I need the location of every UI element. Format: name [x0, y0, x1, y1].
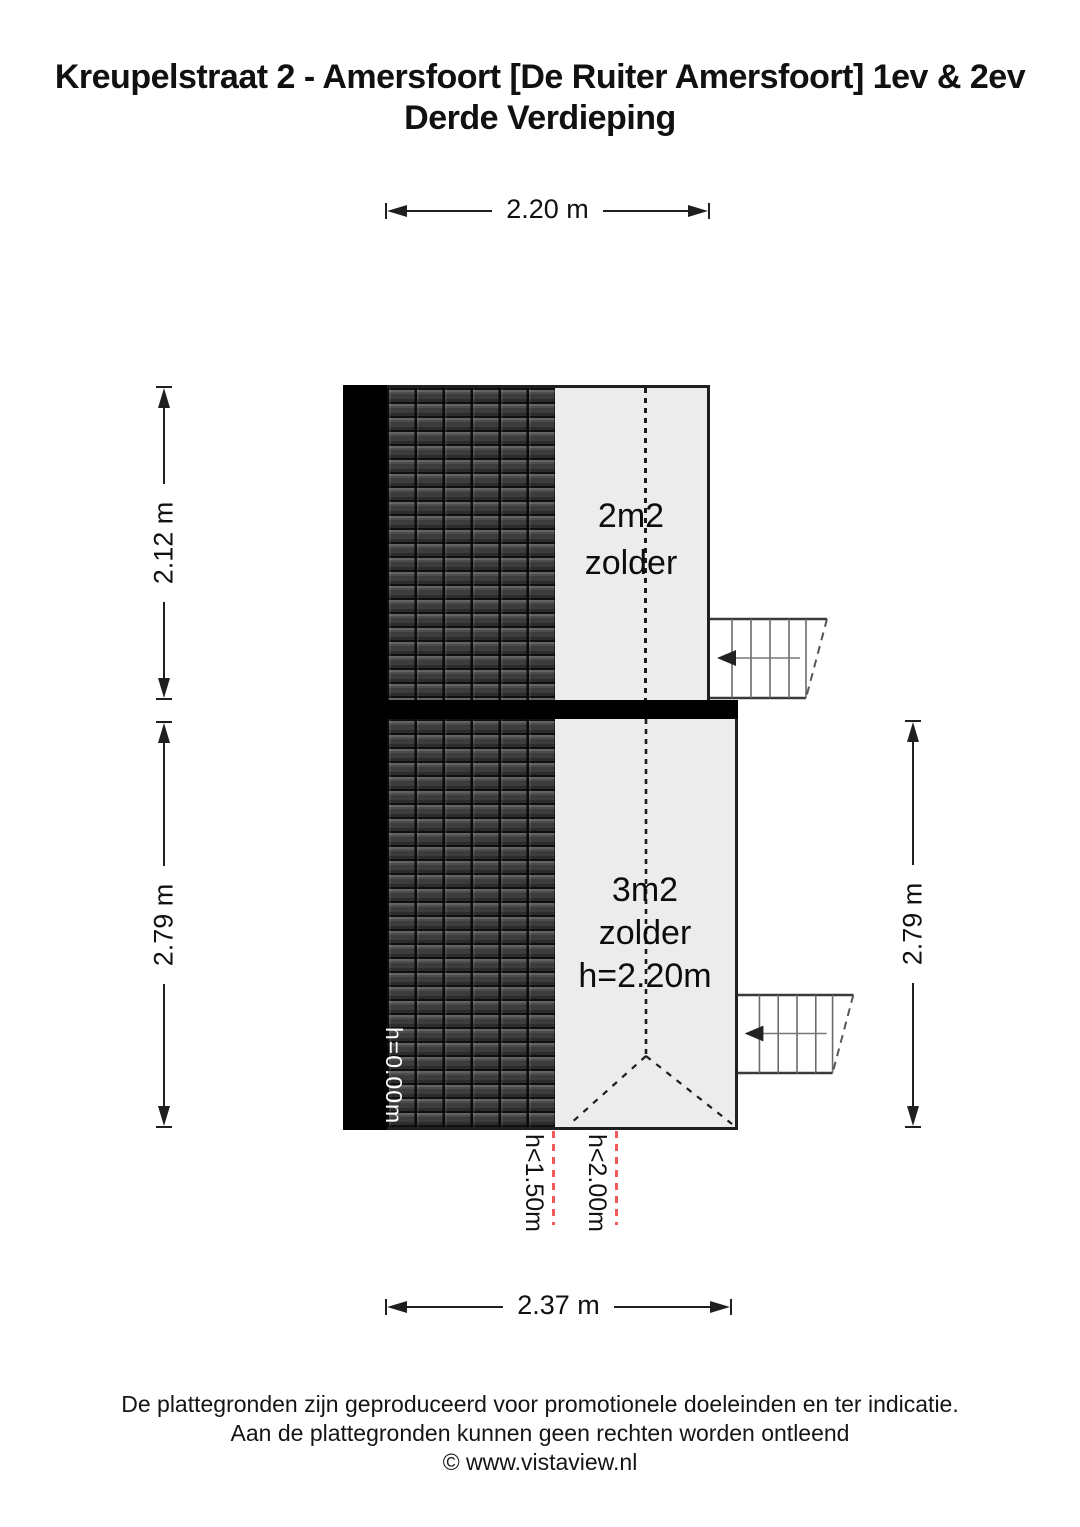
page-title: Kreupelstraat 2 - Amersfoort [De Ruiter …	[0, 57, 1080, 98]
dimension-line	[163, 984, 165, 1107]
staircase-lower-drawing	[737, 993, 857, 1075]
dimension-endbar	[708, 203, 710, 219]
arrow-left-icon	[387, 1301, 407, 1313]
dimension-label-wrap: 2.79 m	[151, 866, 177, 984]
room-upper-name: zolder	[555, 540, 707, 587]
dimension-left-upper: 2.12 m	[151, 386, 177, 700]
attic-room-upper: 2m2 zolder	[343, 385, 710, 700]
dimension-line	[163, 743, 165, 866]
eaves-height-label: h=0.00m	[380, 1027, 407, 1124]
dimension-line	[603, 210, 688, 212]
height-marker-line-1	[552, 1131, 555, 1225]
dimension-line	[614, 1306, 710, 1308]
arrow-right-icon	[710, 1301, 730, 1313]
dimension-line	[912, 983, 914, 1106]
dimension-line	[163, 602, 165, 678]
room-upper-area: 2m2	[555, 493, 707, 540]
floorplan-page: Kreupelstraat 2 - Amersfoort [De Ruiter …	[0, 0, 1080, 1527]
dimension-line	[912, 742, 914, 865]
hip-line-right	[646, 1056, 732, 1124]
arrow-right-icon	[688, 205, 708, 217]
room-label-upper: 2m2 zolder	[555, 493, 707, 587]
dimension-bottom: 2.37 m	[385, 1294, 732, 1320]
room-lower-name: zolder	[555, 912, 735, 955]
dimension-label-wrap: 2.12 m	[151, 484, 177, 602]
staircase-upper-drawing	[710, 617, 830, 700]
footer-disclaimer: De plattegronden zijn geproduceerd voor …	[0, 1390, 1080, 1477]
room-lower-area: 3m2	[555, 869, 735, 912]
height-marker-line-2	[615, 1131, 618, 1225]
dimension-right: 2.79 m	[900, 720, 926, 1128]
footer-copyright: © www.vistaview.nl	[0, 1448, 1080, 1477]
height-marker-label-1: h<1.50m	[519, 1134, 548, 1232]
footer-line-2: Aan de plattegronden kunnen geen rechten…	[0, 1419, 1080, 1448]
dimension-endbar	[156, 1126, 172, 1128]
dimension-label-wrap: 2.79 m	[900, 865, 926, 983]
stair-direction-arrow-icon	[745, 1026, 764, 1042]
stair-open-edge	[806, 619, 827, 698]
dimension-left-lower: 2.79 m	[151, 721, 177, 1128]
staircase-lower	[737, 993, 857, 1075]
dimension-top: 2.20 m	[385, 198, 710, 224]
exterior-wall-left	[343, 385, 387, 1130]
arrow-up-icon	[158, 723, 170, 743]
dimension-right-label: 2.79 m	[898, 883, 929, 966]
footer-line-1: De plattegronden zijn geproduceerd voor …	[0, 1390, 1080, 1419]
roof-hatch-upper	[387, 388, 555, 700]
dimension-line	[407, 1306, 503, 1308]
arrow-down-icon	[158, 1106, 170, 1126]
arrow-up-icon	[158, 388, 170, 408]
height-marker-label-2: h<2.00m	[582, 1134, 611, 1232]
dimension-endbar	[730, 1299, 732, 1315]
page-subtitle: Derde Verdieping	[0, 98, 1080, 139]
dimension-endbar	[905, 1126, 921, 1128]
dimension-left-upper-label: 2.12 m	[149, 502, 180, 585]
staircase-upper	[710, 617, 830, 700]
arrow-down-icon	[907, 1106, 919, 1126]
arrow-down-icon	[158, 678, 170, 698]
dimension-bottom-label: 2.37 m	[503, 1290, 614, 1321]
dimension-endbar	[156, 698, 172, 700]
dimension-line	[163, 408, 165, 484]
roof-hatch-lower	[387, 719, 555, 1127]
stair-open-edge	[833, 995, 854, 1073]
attic-room-lower: 3m2 zolder h=2.20m h=0.00m	[343, 719, 738, 1130]
hip-line-left	[570, 1056, 646, 1124]
dimension-top-label: 2.20 m	[492, 194, 603, 225]
dimension-left-lower-label: 2.79 m	[149, 883, 180, 966]
room-label-lower: 3m2 zolder h=2.20m	[555, 869, 735, 998]
page-title-block: Kreupelstraat 2 - Amersfoort [De Ruiter …	[0, 57, 1080, 139]
arrow-up-icon	[907, 722, 919, 742]
stair-direction-arrow-icon	[717, 650, 736, 666]
arrow-left-icon	[387, 205, 407, 217]
dimension-line	[407, 210, 492, 212]
room-lower-ceiling-height: h=2.20m	[555, 955, 735, 998]
interior-wall-middle	[343, 700, 738, 719]
